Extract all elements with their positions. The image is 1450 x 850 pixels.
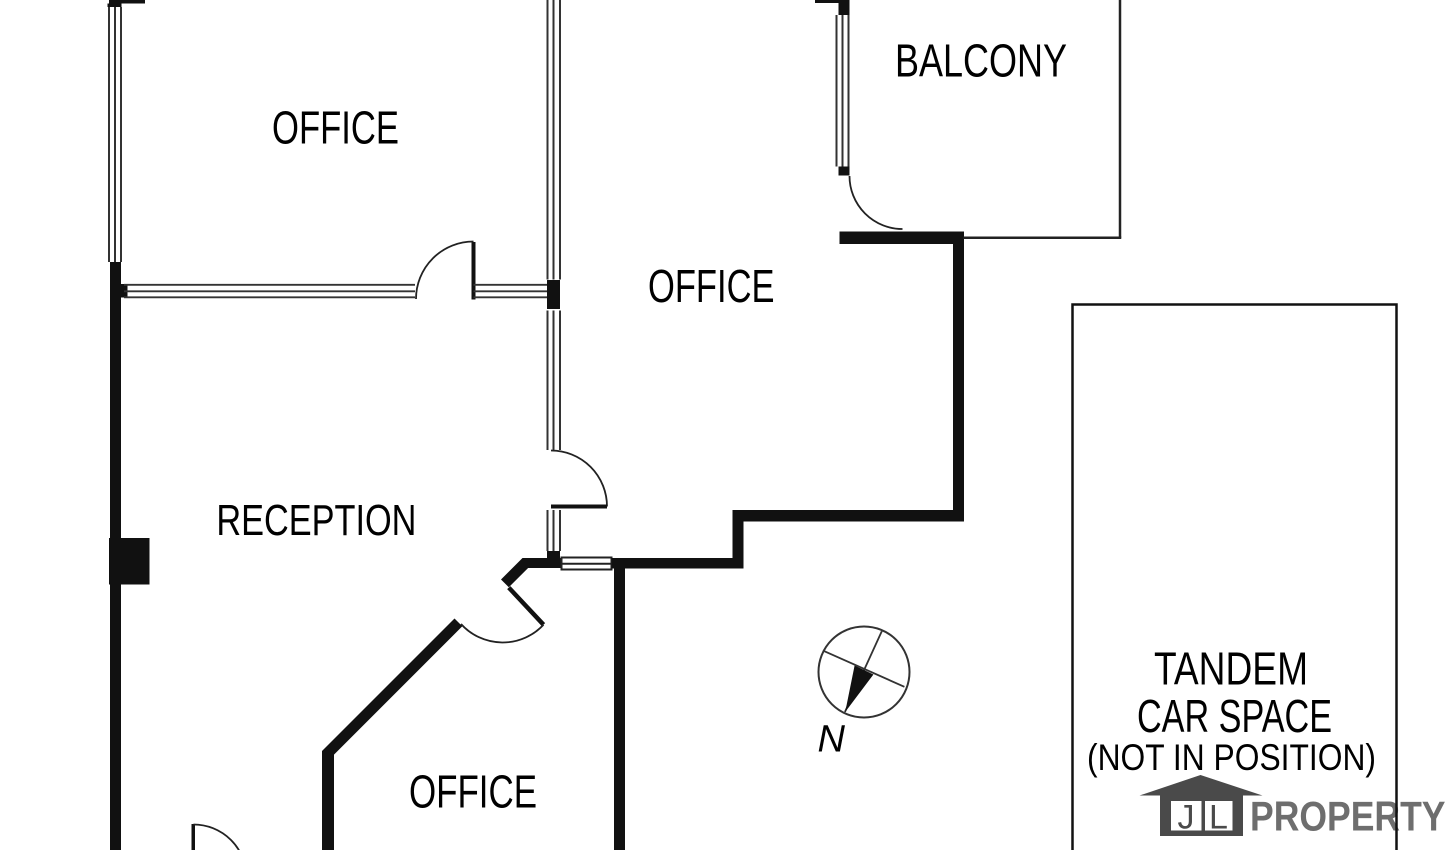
svg-text:PROPERTY: PROPERTY bbox=[1250, 793, 1446, 840]
svg-text:J: J bbox=[1178, 799, 1195, 837]
svg-text:OFFICE: OFFICE bbox=[272, 102, 399, 154]
svg-text:CAR SPACE: CAR SPACE bbox=[1137, 690, 1332, 742]
svg-text:(NOT IN POSITION): (NOT IN POSITION) bbox=[1087, 737, 1376, 778]
svg-text:N: N bbox=[818, 719, 846, 761]
svg-text:OFFICE: OFFICE bbox=[409, 766, 537, 818]
svg-text:TANDEM: TANDEM bbox=[1154, 642, 1308, 694]
svg-text:L: L bbox=[1209, 799, 1228, 837]
svg-text:RECEPTION: RECEPTION bbox=[216, 496, 416, 545]
svg-text:OFFICE: OFFICE bbox=[648, 260, 775, 312]
svg-text:BALCONY: BALCONY bbox=[895, 35, 1067, 87]
